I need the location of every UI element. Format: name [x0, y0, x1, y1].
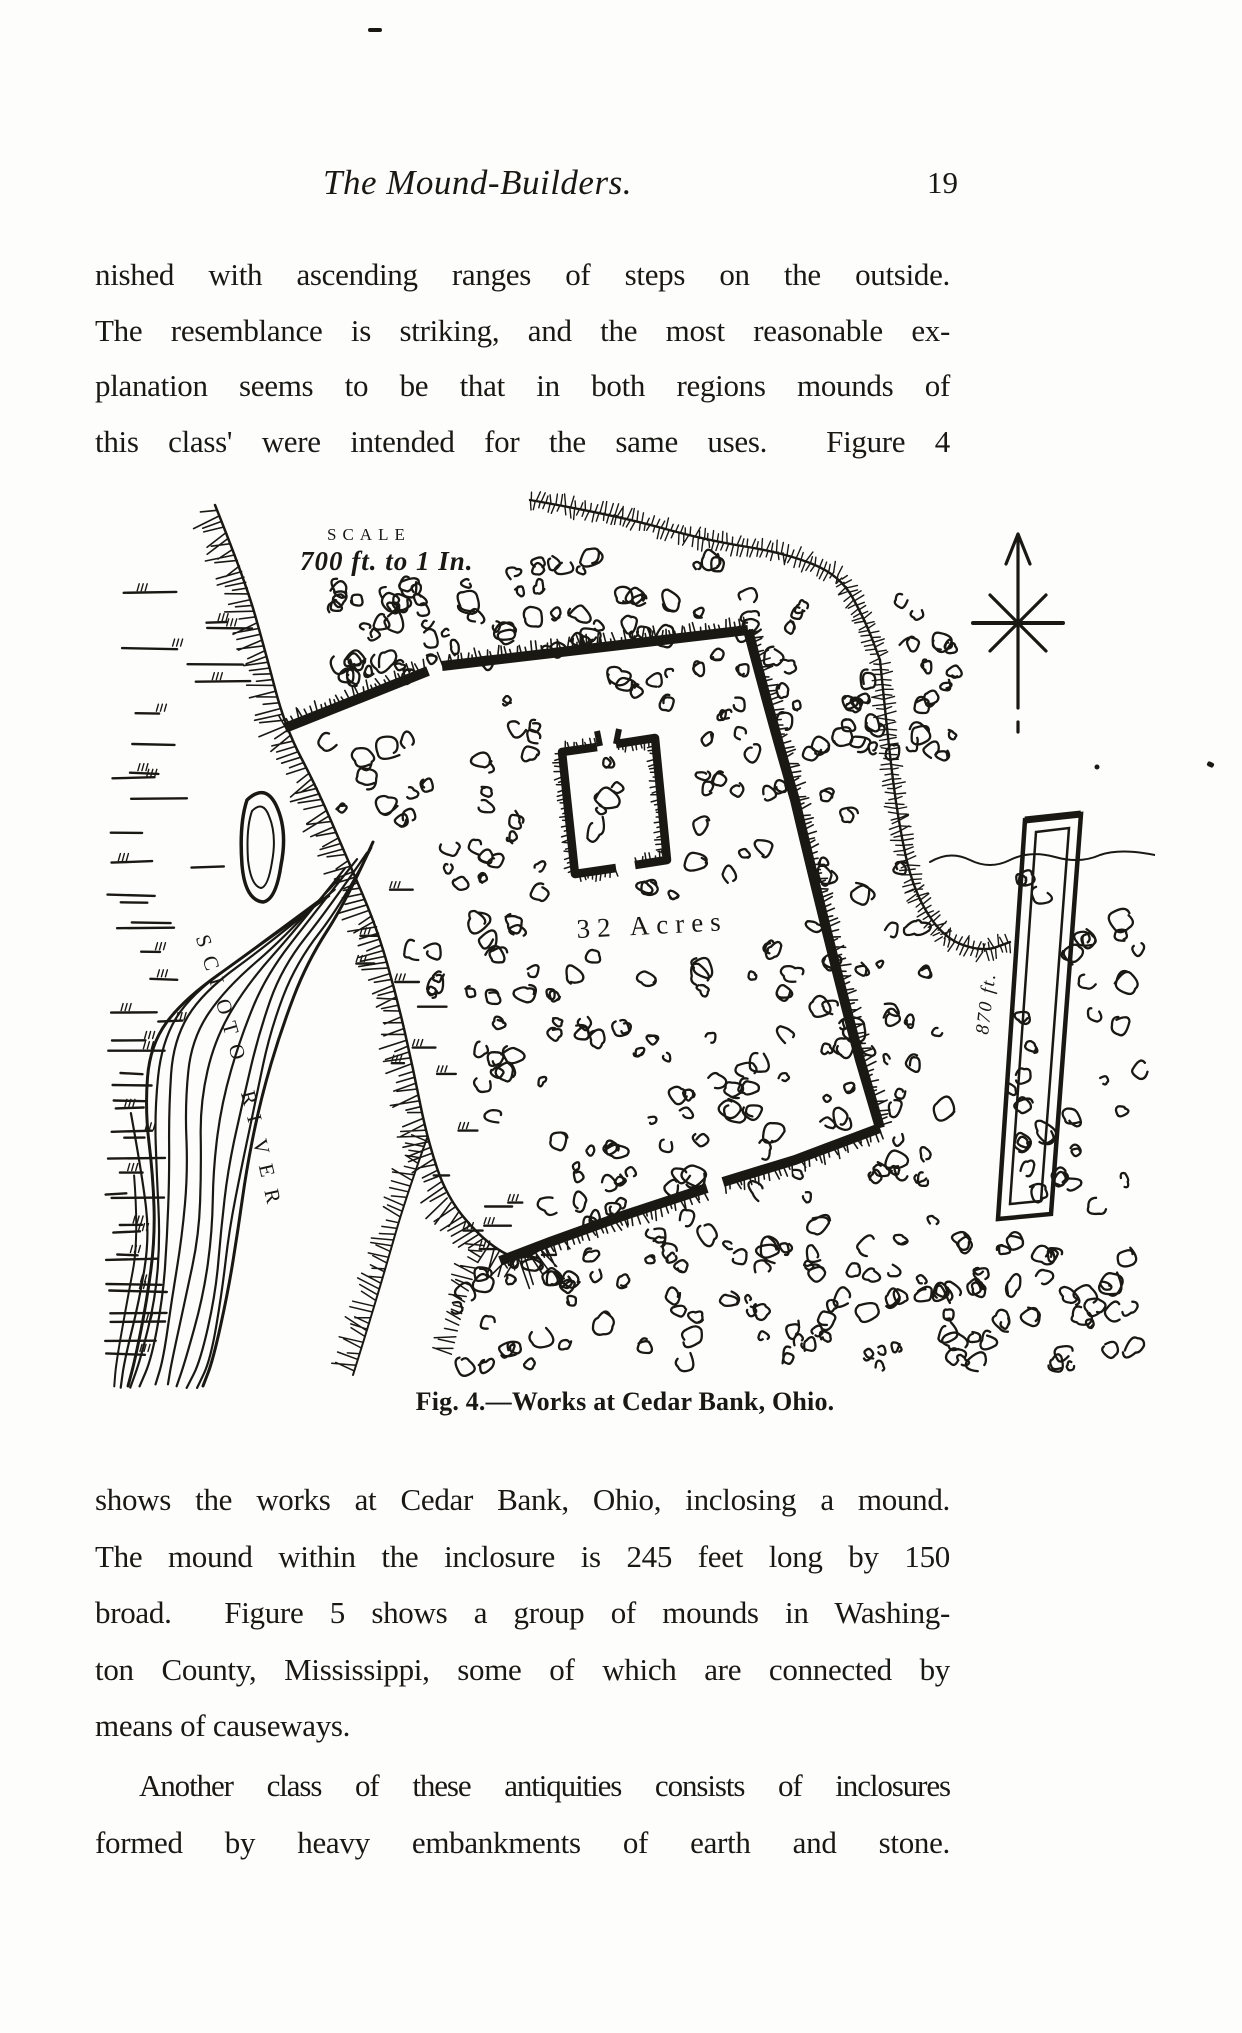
- central-work-wall: [616, 738, 667, 865]
- text-line: formed by heavy embankments of earth and…: [95, 1815, 950, 1872]
- river-label-letter: C: [198, 953, 225, 975]
- bluff-edge: [353, 1138, 427, 1375]
- bluff-hachure: [433, 1244, 484, 1354]
- river-label: SCIOTORIVER: [191, 932, 286, 1207]
- print-artifact-speck: [1206, 761, 1214, 768]
- print-artifact-dash: [368, 28, 382, 32]
- north-compass: [973, 534, 1100, 770]
- text-line: shows the works at Cedar Bank, Ohio, inc…: [95, 1472, 950, 1529]
- text-line: The resemblance is striking, and the mos…: [95, 303, 950, 359]
- river-label-letter: O: [211, 996, 239, 1018]
- ink-speck: [1095, 765, 1100, 770]
- book-page: The Mound-Builders. 19 nished with ascen…: [0, 0, 1242, 2033]
- scale-label: SCALE: [327, 525, 411, 544]
- paragraph-middle: shows the works at Cedar Bank, Ohio, inc…: [95, 1472, 950, 1755]
- page-number: 19: [95, 165, 958, 201]
- river-label-letter: O: [224, 1041, 251, 1063]
- text-line: ton County, Mississippi, some of which a…: [95, 1642, 950, 1699]
- text-line: means of causeways.: [95, 1698, 950, 1755]
- river-water-line: [140, 890, 335, 1387]
- stream-line: [930, 852, 1155, 866]
- parallel-embankment: [998, 814, 1081, 1219]
- river-label-letter: R: [259, 1187, 286, 1207]
- figure-map: SCALE 700 ft. to 1 In. 32 Acres 870 ft. …: [95, 470, 1155, 1390]
- scrub-symbol: [318, 549, 1147, 1376]
- bluff-hachure: [332, 1135, 426, 1371]
- acres-label: 32 Acres: [576, 906, 729, 944]
- text-line: Another class of these antiquities consi…: [95, 1758, 950, 1815]
- embankment-head: [1025, 814, 1081, 820]
- north-wall-segment: [285, 671, 428, 728]
- ravine-hachure: [880, 663, 1008, 952]
- north-wall-segment: [442, 630, 748, 666]
- central-work-gateway: [597, 729, 619, 746]
- paragraph-top: nished with ascending ranges of steps on…: [95, 247, 950, 469]
- river-label-letter: T: [217, 1018, 244, 1038]
- scale-value: 700 ft. to 1 In.: [300, 546, 474, 576]
- river-label-letter: E: [254, 1161, 280, 1180]
- river-label-letter: I: [204, 974, 229, 989]
- embankment-outer: [998, 814, 1081, 1219]
- figure-caption: Fig. 4.—Works at Cedar Bank, Ohio.: [95, 1387, 1155, 1417]
- embankment-length-label: 870 ft.: [972, 971, 1000, 1036]
- pond-outline: [248, 807, 274, 888]
- text-line: The mound within the inclosure is 245 fe…: [95, 1529, 950, 1586]
- text-line: planation seems to be that in both regio…: [95, 358, 950, 414]
- river-label-letter: S: [191, 932, 218, 952]
- ravine-hachure: [872, 664, 1011, 962]
- marsh-tuft: [118, 584, 518, 1352]
- text-line: broad. Figure 5 shows a group of mounds …: [95, 1585, 950, 1642]
- text-line: nished with ascending ranges of steps on…: [95, 247, 950, 303]
- text-line: this class' were intended for the same u…: [95, 414, 950, 470]
- paragraph-bottom: Another class of these antiquities consi…: [95, 1758, 950, 1871]
